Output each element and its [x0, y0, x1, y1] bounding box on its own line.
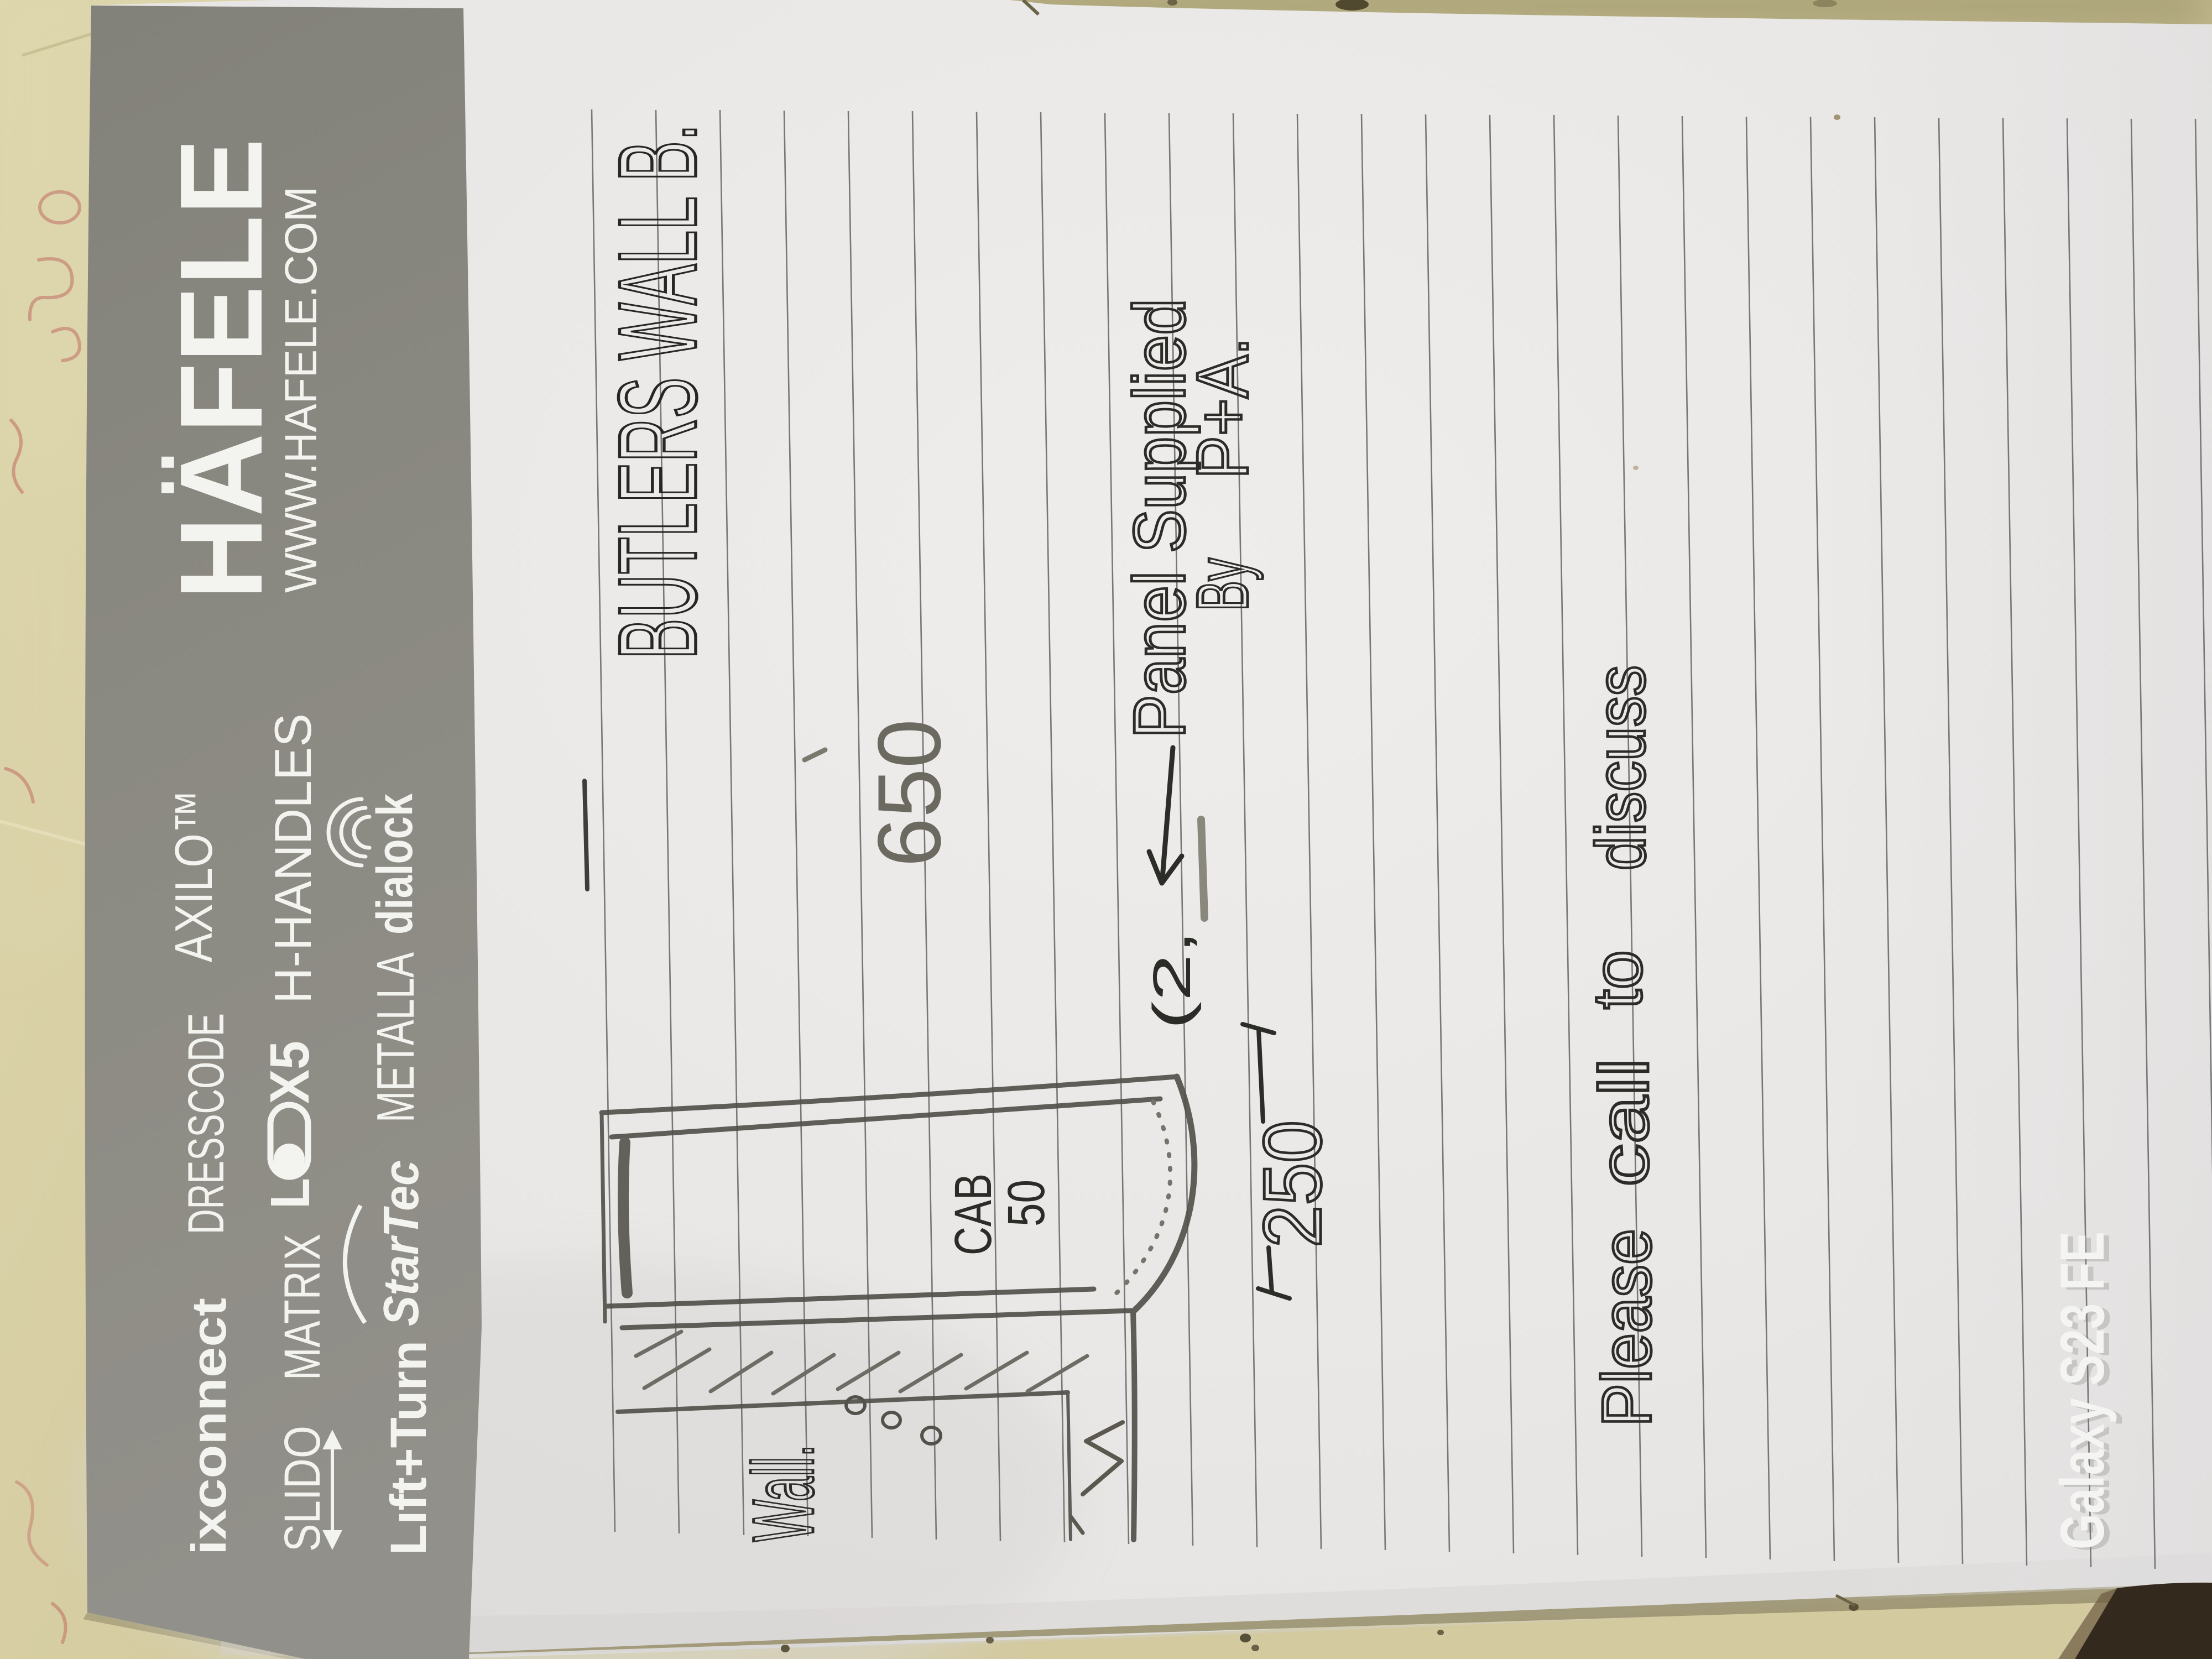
svg-text:H-HANDLES: H-HANDLES: [264, 713, 322, 1004]
svg-text:discuss: discuss: [1582, 665, 1660, 870]
svg-text:CAB: CAB: [944, 1173, 1003, 1255]
svg-text:HÄFELE: HÄFELE: [155, 138, 286, 600]
svg-text:P+A.: P+A.: [1182, 337, 1263, 479]
svg-text:650: 650: [859, 719, 959, 867]
svg-text:X5: X5: [259, 1041, 321, 1104]
svg-text:L: L: [259, 1178, 321, 1209]
svg-text:AXILO™: AXILO™: [164, 790, 223, 962]
svg-text:By: By: [1182, 558, 1263, 611]
svg-text:dialock: dialock: [367, 793, 423, 935]
svg-text:DRESSCODE: DRESSCODE: [178, 1013, 234, 1234]
svg-text:Wall.: Wall.: [735, 1444, 832, 1542]
svg-text:250: 250: [1247, 1120, 1338, 1248]
svg-text:Please: Please: [1588, 1229, 1666, 1427]
svg-text:call: call: [1585, 1058, 1663, 1187]
svg-text:WWW.HAFELE.COM: WWW.HAFELE.COM: [276, 186, 326, 593]
svg-text:(2,: (2,: [1142, 930, 1202, 1030]
svg-text:ixconnect: ixconnect: [181, 1298, 236, 1555]
svg-text:to: to: [1578, 950, 1656, 1009]
svg-text:StarTec: StarTec: [374, 1160, 429, 1326]
svg-text:MATRIX: MATRIX: [274, 1234, 331, 1380]
svg-text:50: 50: [997, 1180, 1056, 1227]
svg-text:METALLA: METALLA: [366, 952, 425, 1123]
svg-text:Galaxy S23 FE: Galaxy S23 FE: [2048, 1232, 2117, 1550]
svg-text:Lıft+Turn: Lıft+Turn: [380, 1340, 437, 1555]
svg-text:BUTLERS WALL B.: BUTLERS WALL B.: [596, 124, 719, 659]
svg-text:SLIDO: SLIDO: [274, 1426, 331, 1552]
